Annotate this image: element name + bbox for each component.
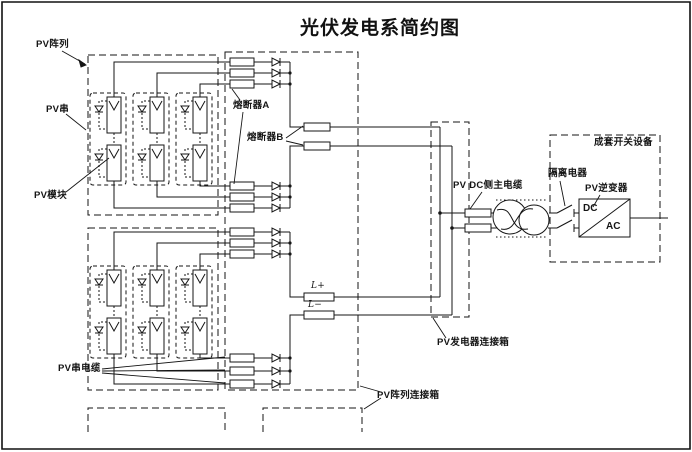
isolation-device-label: 隔离电器 bbox=[548, 169, 587, 179]
generator-junction-box-label: PV发电器连接箱 bbox=[437, 338, 509, 348]
l-minus-label: L− bbox=[308, 301, 322, 310]
fuse-b-label: 熔断器B bbox=[247, 133, 284, 143]
pv-strings bbox=[90, 93, 212, 358]
pv-module-label: PV模块 bbox=[34, 191, 67, 201]
diagram-title: 光伏发电系简约图 bbox=[300, 13, 446, 40]
partial-array-box-right bbox=[263, 408, 362, 432]
pv-system-diagram: 光伏发电系简约图 PV阵列 PV串 PV模块 熔断器A 熔断器B PV串电缆 L… bbox=[0, 0, 692, 452]
collector-buses bbox=[290, 62, 304, 384]
generator-junction-box bbox=[431, 122, 469, 317]
main-fuses bbox=[304, 123, 452, 319]
switchgear-label: 成套开关设备 bbox=[594, 138, 653, 148]
array2-wiring bbox=[114, 232, 228, 384]
array-junction-box-label: PV阵列连接箱 bbox=[377, 391, 439, 401]
pv-array2-box bbox=[88, 228, 218, 390]
pv-string-label: PV串 bbox=[46, 105, 69, 115]
pv-inverter-label: PV逆变器 bbox=[585, 184, 628, 194]
l-plus-label: L+ bbox=[311, 282, 325, 291]
junction-dots bbox=[288, 71, 453, 372]
isolation-switches bbox=[557, 205, 579, 232]
pv-string-cable-label: PV串电缆 bbox=[58, 364, 101, 374]
diagram-linework bbox=[0, 0, 692, 452]
partial-array-box-left bbox=[88, 408, 225, 432]
dc-main-cable-symbol bbox=[493, 200, 557, 237]
dc-main-cable-label: PV DC侧主电缆 bbox=[453, 181, 523, 191]
fuse-a-label: 熔断器A bbox=[233, 101, 270, 111]
pv-array-label: PV阵列 bbox=[36, 40, 69, 50]
dc-text: DC bbox=[583, 204, 597, 214]
array1-wiring bbox=[114, 62, 228, 208]
ac-text: AC bbox=[606, 222, 620, 232]
pv-array1-box bbox=[88, 55, 218, 215]
